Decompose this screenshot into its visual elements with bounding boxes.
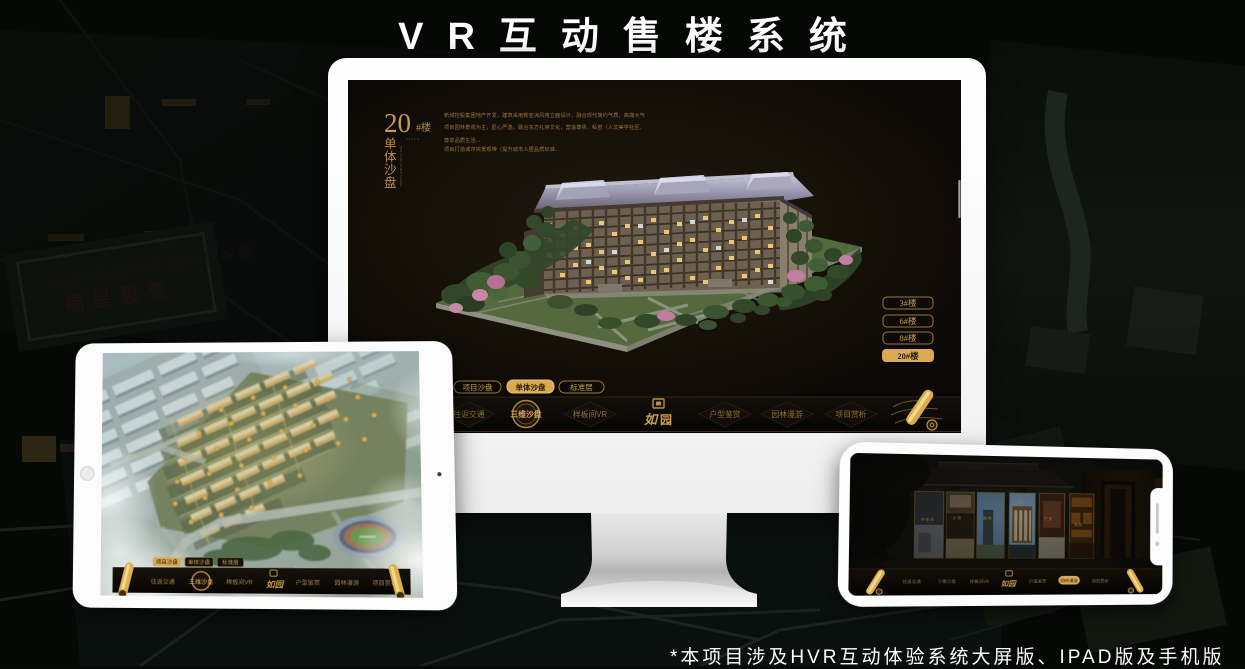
svg-text:V I L L A: V I L L A [406, 137, 420, 141]
svg-text:THE SAND TABLE MODEL: THE SAND TABLE MODEL [399, 146, 403, 187]
svg-text:6#楼: 6#楼 [899, 316, 917, 326]
svg-text:园林漫游: 园林漫游 [334, 578, 359, 587]
svg-text:如: 如 [644, 412, 659, 427]
svg-text:三维沙盘: 三维沙盘 [938, 579, 956, 585]
svg-text:沙: 沙 [384, 163, 397, 177]
svg-text:20: 20 [384, 108, 411, 138]
svg-text:项目打造城市央景观带（提升城市人居品质标准．: 项目打造城市央景观带（提升城市人居品质标准． [444, 145, 560, 153]
svg-text:户型鉴赏: 户型鉴赏 [1029, 578, 1047, 584]
svg-text:体: 体 [384, 150, 397, 164]
svg-text:园: 园 [660, 413, 672, 427]
svg-text:三维沙盘: 三维沙盘 [510, 409, 541, 419]
svg-text:项目沙盘: 项目沙盘 [463, 382, 493, 392]
svg-text:尊享品质生活．．: 尊享品质生活．． [444, 136, 484, 144]
svg-text:项目赏析: 项目赏析 [1092, 578, 1109, 584]
svg-text:如园: 如园 [266, 579, 285, 590]
svg-text:20#楼: 20#楼 [897, 351, 919, 361]
svg-text:户型鉴赏: 户型鉴赏 [709, 409, 740, 419]
svg-text:样板间VR: 样板间VR [573, 409, 608, 419]
svg-text:样板间VR: 样板间VR [226, 578, 253, 587]
svg-text:三维沙盘: 三维沙盘 [189, 578, 213, 587]
svg-text:#楼: #楼 [416, 121, 431, 134]
svg-text:新城控股集团地产开发，建筑采用新亚洲风格立面设计，融合现代简: 新城控股集团地产开发，建筑采用新亚洲风格立面设计，融合现代简约气质，高端大气 [444, 111, 645, 119]
svg-text:8#楼: 8#楼 [899, 333, 917, 343]
svg-text:园林漫游: 园林漫游 [1061, 578, 1078, 584]
svg-text:户型鉴赏: 户型鉴赏 [295, 578, 320, 587]
svg-text:如园: 如园 [1001, 579, 1018, 588]
svg-text:项目园林景观为主，匠心严选，融合东方礼序文化，营造尊贵．私密: 项目园林景观为主，匠心严选，融合东方礼序文化，营造尊贵．私密（人文美学社区， [444, 123, 645, 131]
svg-text:项目赏析: 项目赏析 [835, 409, 866, 419]
svg-text:往返交通: 往返交通 [151, 577, 175, 586]
svg-text:标准层: 标准层 [222, 558, 239, 567]
svg-text:单体沙盘: 单体沙盘 [188, 558, 211, 567]
svg-text:单体沙盘: 单体沙盘 [516, 382, 546, 392]
svg-text:盘: 盘 [384, 175, 397, 190]
svg-text:往返交通: 往返交通 [903, 579, 921, 585]
svg-text:标准层: 标准层 [570, 382, 593, 392]
svg-text:往返交通: 往返交通 [453, 409, 484, 419]
svg-text:项目沙盘: 项目沙盘 [156, 557, 179, 566]
svg-text:样板间VR: 样板间VR [970, 578, 990, 584]
svg-text:园林漫游: 园林漫游 [771, 409, 802, 419]
svg-text:3#楼: 3#楼 [899, 298, 917, 308]
svg-text:单: 单 [384, 137, 397, 151]
